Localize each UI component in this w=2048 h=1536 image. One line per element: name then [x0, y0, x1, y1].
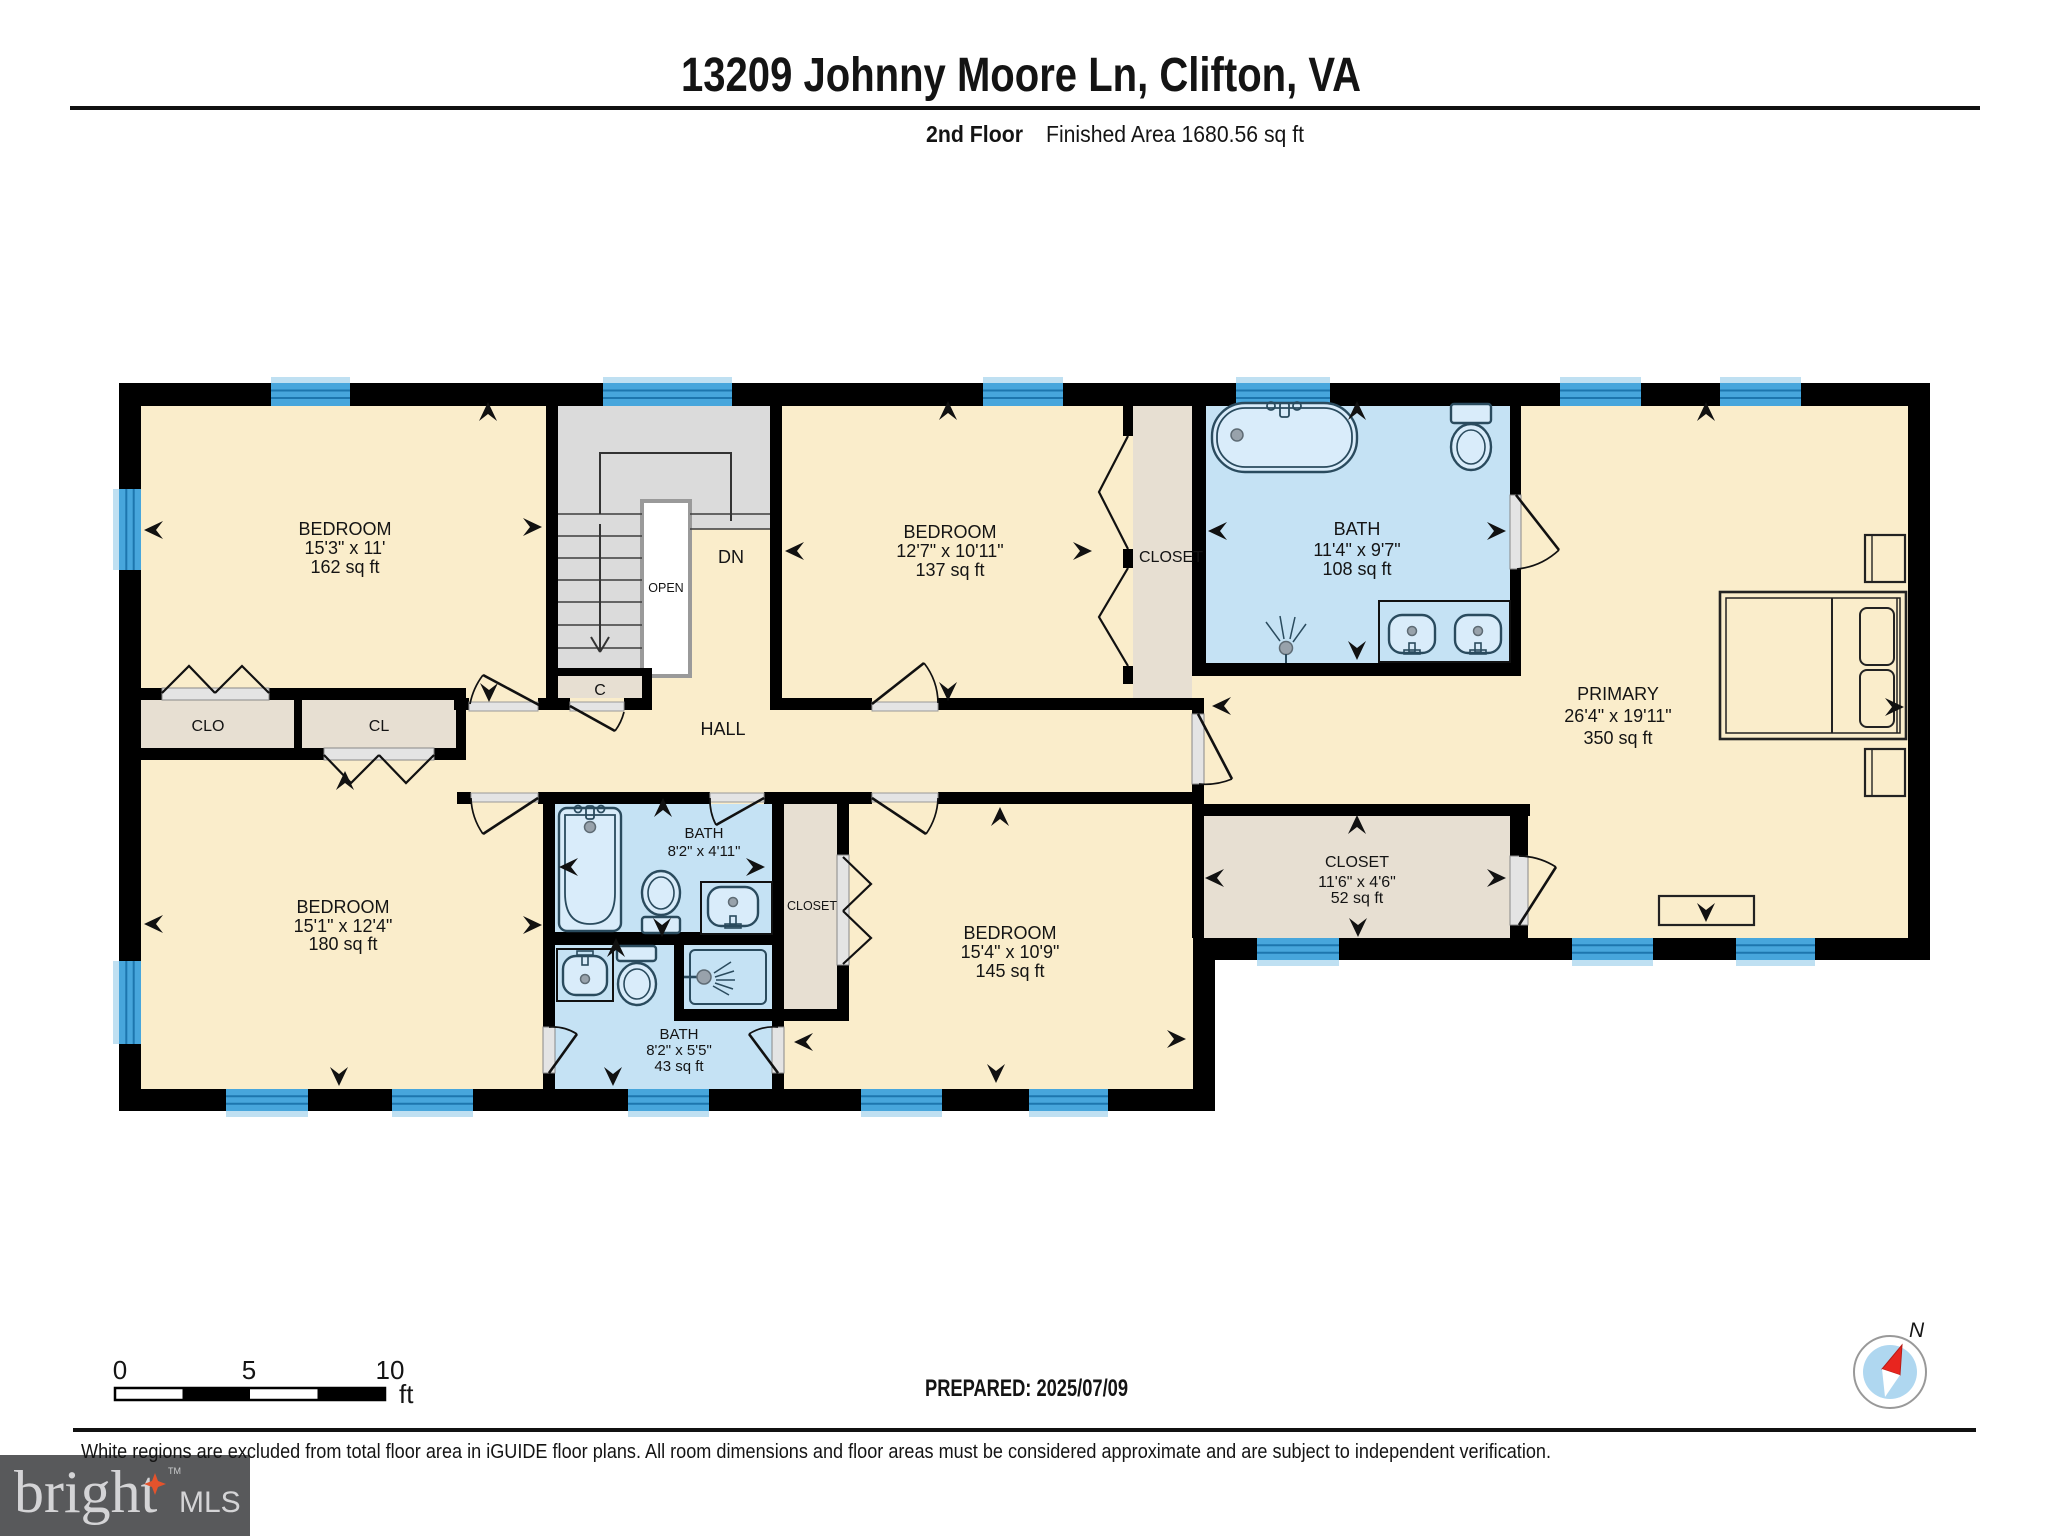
svg-text:15'4" x 10'9": 15'4" x 10'9": [961, 942, 1060, 962]
svg-text:PRIMARY: PRIMARY: [1577, 684, 1659, 704]
svg-text:White regions are excluded fro: White regions are excluded from total fl…: [81, 1441, 1551, 1463]
svg-text:26'4" x 19'11": 26'4" x 19'11": [1564, 706, 1671, 726]
svg-text:CLOSET: CLOSET: [1139, 549, 1203, 566]
svg-text:13209 Johnny Moore Ln, Clifton: 13209 Johnny Moore Ln, Clifton, VA: [681, 49, 1361, 102]
svg-text:2nd Floor: 2nd Floor: [926, 121, 1023, 147]
svg-text:C: C: [594, 682, 606, 699]
svg-text:180 sq ft: 180 sq ft: [308, 934, 377, 954]
svg-text:BEDROOM: BEDROOM: [903, 522, 996, 542]
svg-text:DN: DN: [718, 547, 744, 567]
svg-text:15'1" x 12'4": 15'1" x 12'4": [294, 916, 393, 936]
svg-text:BATH: BATH: [660, 1026, 699, 1043]
svg-text:8'2" x 4'11": 8'2" x 4'11": [668, 843, 741, 860]
svg-text:43 sq ft: 43 sq ft: [654, 1058, 704, 1075]
svg-text:12'7" x 10'11": 12'7" x 10'11": [896, 541, 1003, 561]
svg-text:HALL: HALL: [700, 719, 745, 739]
svg-text:BEDROOM: BEDROOM: [963, 923, 1056, 943]
svg-text:OPEN: OPEN: [648, 581, 683, 595]
svg-text:BEDROOM: BEDROOM: [296, 897, 389, 917]
svg-text:BATH: BATH: [685, 825, 724, 842]
svg-text:bright: bright: [14, 1459, 158, 1525]
svg-text:CLO: CLO: [192, 718, 225, 735]
svg-text:Finished Area 1680.56 sq ft: Finished Area 1680.56 sq ft: [1046, 121, 1305, 147]
svg-text:CLOSET: CLOSET: [1325, 854, 1389, 871]
svg-text:137 sq ft: 137 sq ft: [915, 560, 984, 580]
svg-text:8'2" x 5'5": 8'2" x 5'5": [646, 1042, 712, 1059]
svg-text:0: 0: [113, 1355, 127, 1385]
svg-text:BEDROOM: BEDROOM: [298, 519, 391, 539]
svg-text:MLS: MLS: [179, 1486, 241, 1519]
svg-text:350 sq ft: 350 sq ft: [1583, 728, 1652, 748]
svg-text:BATH: BATH: [1334, 519, 1381, 539]
svg-text:5: 5: [242, 1355, 256, 1385]
svg-text:15'3" x 11': 15'3" x 11': [305, 538, 386, 558]
svg-text:162 sq ft: 162 sq ft: [310, 557, 379, 577]
svg-text:CLOSET: CLOSET: [787, 899, 837, 913]
svg-text:11'4" x 9'7": 11'4" x 9'7": [1313, 540, 1400, 560]
svg-text:52 sq ft: 52 sq ft: [1331, 890, 1384, 907]
svg-text:108 sq ft: 108 sq ft: [1322, 559, 1391, 579]
svg-text:CL: CL: [369, 718, 390, 735]
svg-text:N: N: [1909, 1319, 1925, 1342]
svg-text:PREPARED: 2025/07/09: PREPARED: 2025/07/09: [925, 1375, 1128, 1402]
svg-text:145 sq ft: 145 sq ft: [975, 961, 1044, 981]
svg-text:TM: TM: [168, 1466, 181, 1476]
svg-text:ft: ft: [399, 1379, 414, 1409]
svg-text:11'6" x 4'6": 11'6" x 4'6": [1318, 874, 1396, 891]
